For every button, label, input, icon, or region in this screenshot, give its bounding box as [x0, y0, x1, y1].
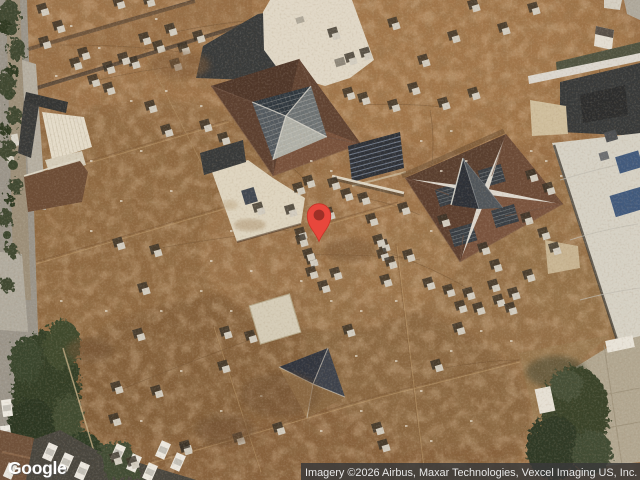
svg-text:Google: Google — [8, 458, 67, 478]
svg-text:Imagery ©2026 Airbus, Maxar Te: Imagery ©2026 Airbus, Maxar Technologies… — [305, 467, 637, 479]
